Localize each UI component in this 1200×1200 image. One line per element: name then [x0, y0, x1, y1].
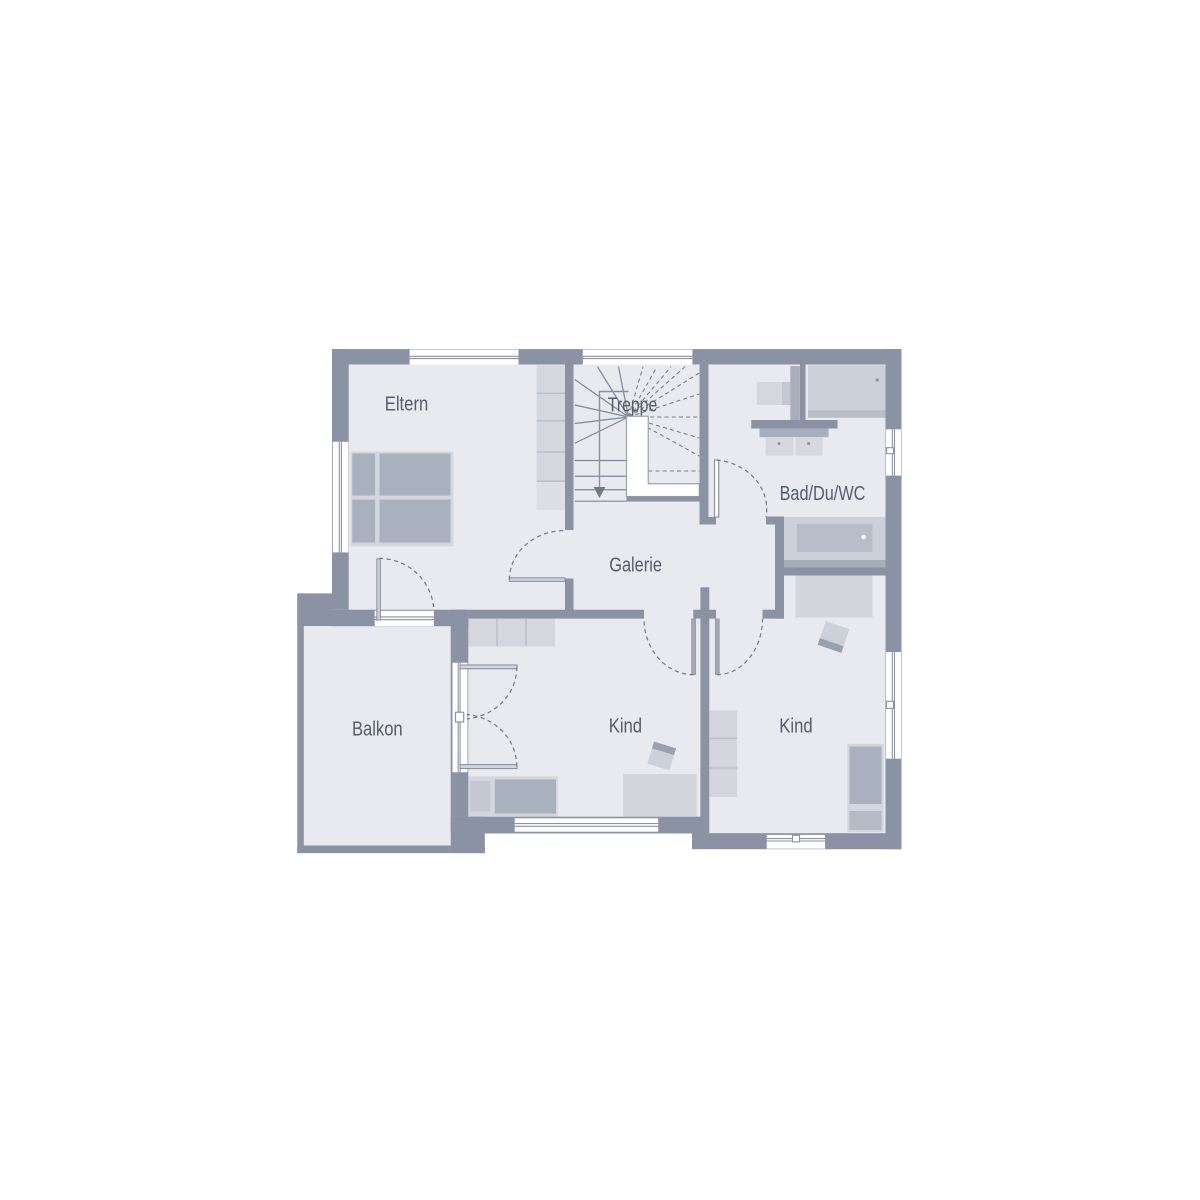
svg-text:Eltern: Eltern: [385, 393, 429, 416]
svg-text:Treppe: Treppe: [608, 394, 658, 417]
svg-text:Kind: Kind: [779, 714, 812, 737]
svg-text:Kind: Kind: [609, 714, 642, 737]
svg-text:Bad/Du/WC: Bad/Du/WC: [780, 482, 866, 505]
svg-text:Galerie: Galerie: [609, 553, 662, 576]
svg-text:Balkon: Balkon: [352, 717, 403, 740]
